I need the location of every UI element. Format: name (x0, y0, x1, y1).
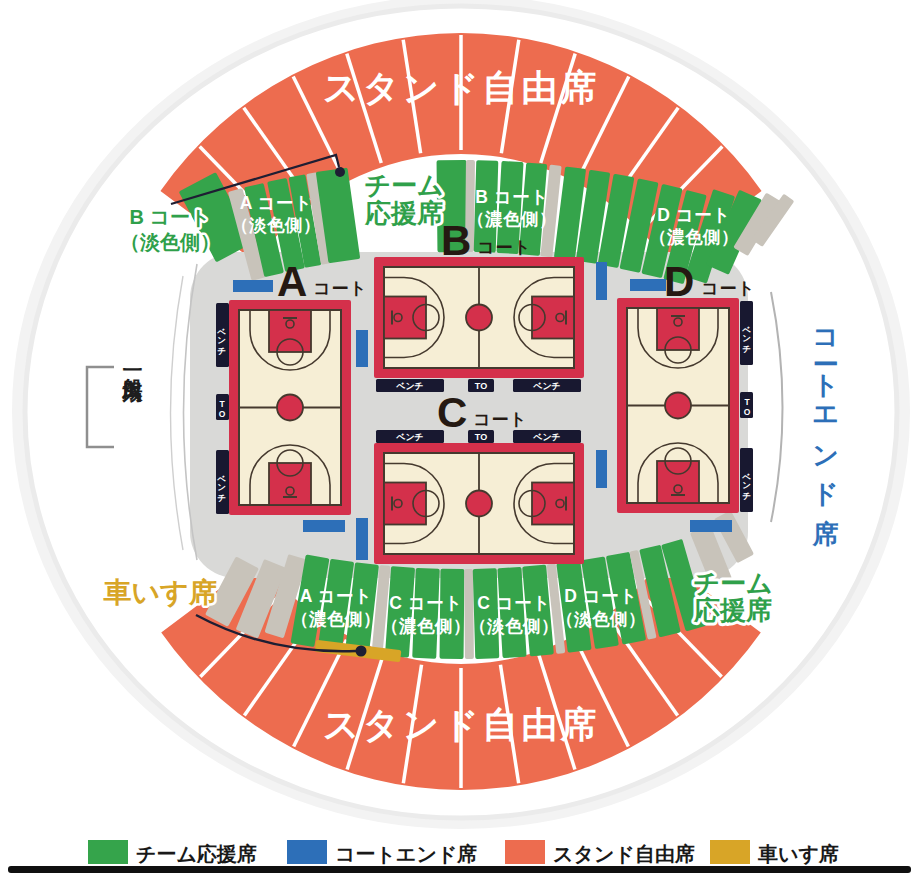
court-d-letter: D (664, 258, 694, 305)
court-b-bench-right-label: ベンチ (532, 381, 561, 391)
court-end-seat-block (303, 520, 345, 532)
top-section-a-pale-line1: A コート (240, 193, 313, 213)
pointer-dot-wheelchair (356, 646, 367, 657)
bottom-border-bar (8, 866, 911, 873)
legend-stand-free-label: スタンド自由席 (553, 843, 695, 865)
court-end-seat-block (356, 330, 368, 367)
court-a-letter: A (277, 258, 307, 305)
court-b-bench-left-label: ベンチ (395, 381, 424, 391)
stand-bottom-label: スタンド自由席 (323, 704, 599, 745)
court-end-seat-block (690, 520, 732, 532)
top-section-d-dark-line2: （濃色側） (649, 227, 739, 247)
court-b-key (384, 297, 426, 339)
bottom-section-c-dark-line2: （濃色側） (381, 616, 471, 636)
court-end-seat-block (596, 262, 607, 300)
seat-block-cheer (440, 569, 465, 659)
legend-swatch (505, 840, 545, 864)
b-court-pale-label-line1: B コート (130, 206, 211, 228)
court-d-bench-bottom-label: ベンチ (741, 467, 752, 500)
bottom-section-c-pale-line2: （淡色側） (469, 616, 559, 636)
seat-block-cheer (412, 568, 440, 659)
court-b-letter: B (441, 217, 471, 264)
court-c-bench-left-label: ベンチ (395, 432, 424, 442)
team-cheer-top-line1: チーム (364, 170, 443, 200)
pointer-dot-b-pale (335, 167, 345, 177)
b-court-pale-label-line2: （淡色側） (120, 231, 220, 253)
bottom-section-d-pale-line2: （淡色側） (556, 609, 646, 629)
court-b-center-circle (466, 305, 492, 331)
court-a-key (269, 310, 311, 352)
court-c-suffix: コート (473, 410, 528, 429)
bottom-section-d-pale-line1: D コート (564, 586, 637, 606)
court-c-center-circle (466, 491, 492, 517)
top-section-d-dark-line1: D コート (657, 205, 730, 225)
seat-block-cheer (473, 568, 500, 659)
top-section-b-dark-line1: B コート (475, 187, 548, 207)
court-c-key (384, 483, 426, 525)
court-c-letter: C (437, 389, 467, 436)
court-b-to-label: TO (475, 381, 487, 391)
court-end-seat-block (356, 518, 368, 560)
stand-top-label: スタンド自由席 (323, 67, 599, 108)
legend-swatch (710, 840, 750, 864)
bottom-section-a-dark-line1: A コート (300, 586, 373, 606)
legend-swatch (287, 840, 327, 864)
legend-swatch (88, 840, 128, 864)
court-b-key (532, 297, 574, 339)
court-end-seat-block (233, 280, 273, 292)
court-a-bench-top-label: ベンチ (216, 322, 227, 355)
bottom-section-a-dark-line2: （濃色側） (291, 609, 381, 629)
seat-block-gap (464, 569, 474, 659)
court-end-seat-block (596, 450, 607, 488)
court-d-bench-top-label: ベンチ (741, 320, 752, 353)
arena-svg: スタンド自由席 スタンド自由席 A コート （淡色側） チーム 応援席 B コー… (0, 0, 919, 873)
court-b-suffix: コート (477, 238, 532, 257)
court-c-key (532, 483, 574, 525)
team-cheer-bottom-line2: 応援席 (693, 595, 772, 625)
bottom-section-c-dark-line1: C コート (389, 593, 462, 613)
top-section-a-pale-line2: （淡色側） (231, 215, 321, 235)
court-a-center-circle (277, 395, 303, 421)
legend-court-end-label: コートエンド席 (335, 843, 477, 865)
court-d-key (657, 308, 699, 350)
court-d-suffix: コート (701, 279, 756, 298)
bottom-section-c-pale-line1: C コート (477, 593, 550, 613)
legend-team-cheer-label: チーム応援席 (136, 843, 257, 865)
court-a-to-label: TO (217, 399, 227, 419)
legend-wheelchair-label: 車いす席 (757, 843, 839, 865)
top-section-b-dark-line2: （濃色側） (467, 209, 557, 229)
court-d-to-label: TO (742, 397, 752, 417)
team-cheer-bottom-line1: チーム (693, 568, 772, 598)
court-d-key (657, 461, 699, 503)
court-c-bench-right-label: ベンチ (532, 432, 561, 442)
arena-seating-map: スタンド自由席 スタンド自由席 A コート （淡色側） チーム 応援席 B コー… (0, 0, 919, 873)
court-a-key (269, 463, 311, 505)
court-end-seat-block (630, 279, 666, 291)
wheelchair-seats-label: 車いす席 (103, 577, 216, 608)
team-cheer-top-line2: 応援席 (364, 198, 443, 228)
court-d-center-circle (665, 393, 691, 419)
court-a-bench-bottom-label: ベンチ (216, 469, 227, 502)
court-a-suffix: コート (313, 279, 368, 298)
court-c-to-label: TO (475, 432, 487, 442)
